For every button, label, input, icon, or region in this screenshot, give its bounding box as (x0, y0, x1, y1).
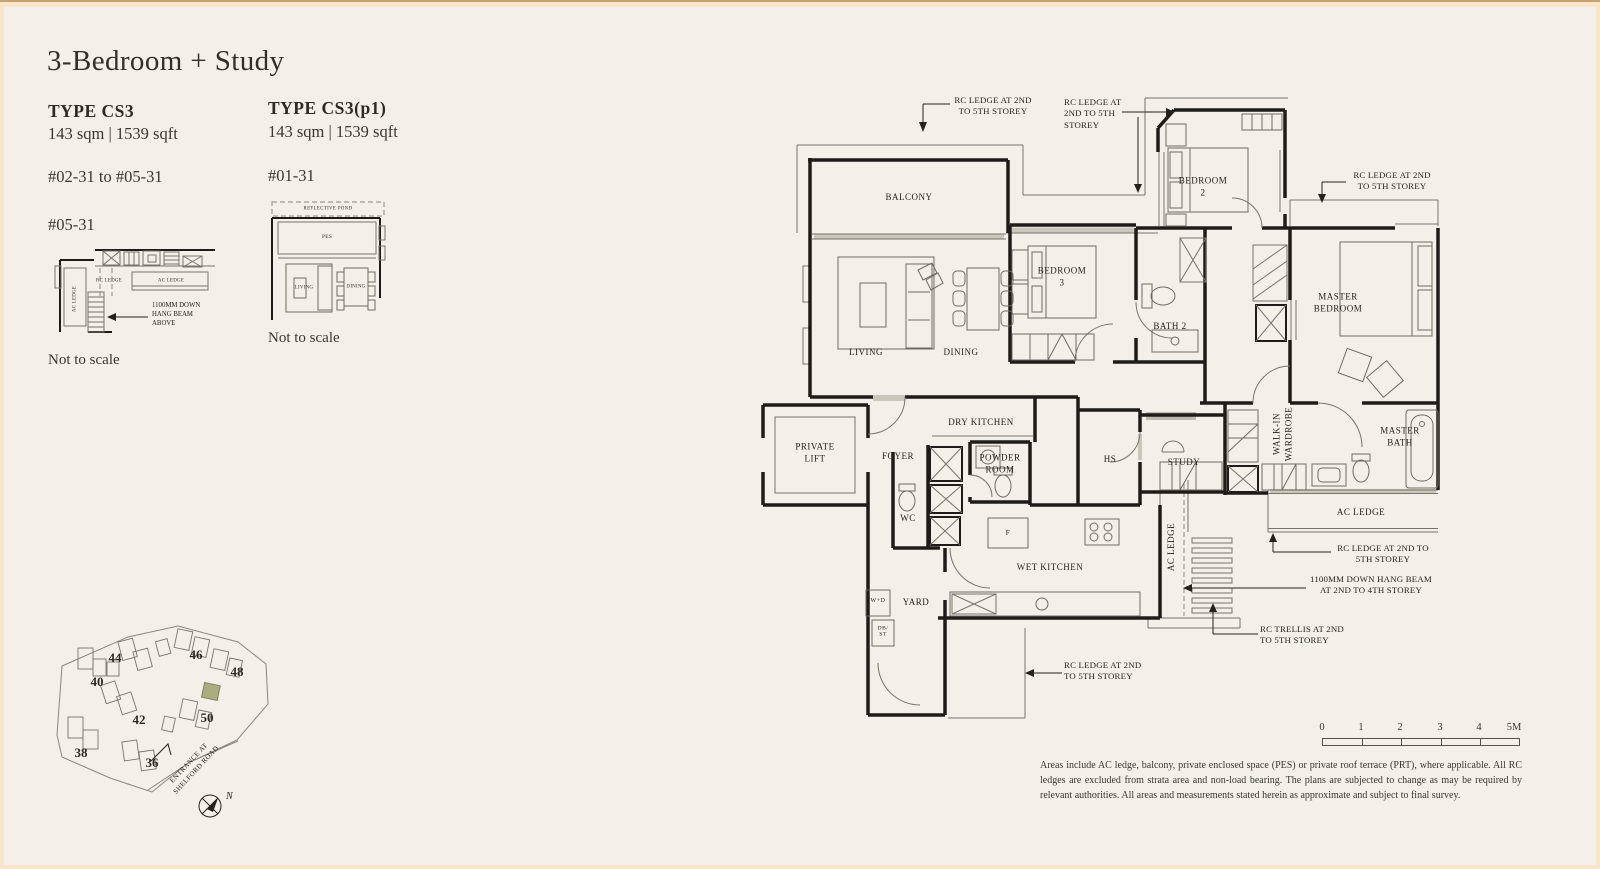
mini-cs3-ac-ledge-label: AC LEDGE (158, 279, 184, 284)
site-block-46: 46 (190, 647, 203, 663)
type-cs3p1-name: TYPE CS3(p1) (268, 98, 386, 119)
mini-cs3p1-living-label: LIVING (295, 286, 313, 291)
room-label-dining: DINING (944, 347, 979, 359)
floor-plan-brochure-page: 3-Bedroom + Study TYPE CS3 143 sqm | 153… (0, 0, 1600, 869)
room-label-bedroom3: BEDROOM 3 (1038, 265, 1087, 288)
page-border-topline (0, 0, 1600, 2)
room-label-hs: HS (1104, 454, 1117, 466)
site-block-40: 40 (91, 674, 104, 690)
type-cs3-units: #02-31 to #05-31 (48, 167, 163, 187)
room-label-wc: WC (900, 513, 916, 525)
room-label-master-bath: MASTER BATH (1380, 425, 1420, 448)
annotation-rc-ledge-right: RC LEDGE AT 2ND TO 5TH STOREY (1333, 543, 1433, 566)
scale-bar-rule (1322, 738, 1520, 746)
room-label-walk-in-wardrobe: WALK-IN WARDROBE (1271, 407, 1294, 462)
mini-cs3-leader (107, 313, 148, 321)
room-label-private-lift: PRIVATE LIFT (795, 441, 834, 464)
type-cs3-name: TYPE CS3 (48, 101, 134, 122)
room-label-ac-ledge-mid: AC LEDGE (1166, 523, 1178, 571)
annotation-rc-ledge-top-left: RC LEDGE AT 2ND TO 5TH STOREY (948, 95, 1038, 118)
annotation-rc-trellis: RC TRELLIS AT 2ND TO 5TH STOREY (1260, 624, 1352, 647)
type-cs3p1-area: 143 sqm | 1539 sqft (268, 122, 398, 142)
site-block-44: 44 (109, 650, 122, 666)
annotation-rc-ledge-bottom: RC LEDGE AT 2ND TO 5TH STOREY (1064, 660, 1152, 683)
site-block-48: 48 (231, 664, 244, 680)
disclaimer-text: Areas include AC ledge, balcony, private… (1040, 758, 1522, 804)
page-border-bottom (0, 865, 1600, 869)
room-label-wet-kitchen: WET KITCHEN (1017, 562, 1084, 574)
room-label-db-st: DB/ ST (878, 626, 889, 639)
page-border-left (0, 0, 4, 869)
room-label-study: STUDY (1168, 457, 1201, 469)
type-cs3p1-units: #01-31 (268, 166, 315, 186)
mini-cs3-beam-note: 1100MM DOWN HANG BEAM ABOVE (152, 301, 200, 329)
annotation-rc-ledge-top-right: RC LEDGE AT 2ND TO 5TH STOREY (1348, 170, 1436, 193)
mini-plan-cs3p1 (264, 196, 392, 332)
annotation-rc-ledge-top-mid: RC LEDGE AT 2ND TO 5TH STOREY (1064, 97, 1134, 131)
site-block-50: 50 (201, 710, 214, 726)
mini-cs3p1-pes-label: PES (322, 234, 332, 240)
site-block-36: 36 (146, 755, 159, 771)
mini-cs3p1-reflective-pond-label: REFLECTIVE POND (303, 207, 352, 212)
site-map (45, 615, 280, 825)
plan-annotation-leaders (919, 104, 1346, 677)
room-label-yard: YARD (903, 597, 930, 609)
scale-tick-5m: 5M (1507, 722, 1522, 733)
scale-tick-3: 3 (1437, 722, 1442, 733)
type-cs3-detail-unit: #05-31 (48, 215, 95, 235)
not-to-scale-note-2: Not to scale (268, 330, 340, 347)
site-block-38: 38 (75, 745, 88, 761)
annotation-hang-beam: 1100MM DOWN HANG BEAM AT 2ND TO 4TH STOR… (1308, 574, 1434, 597)
site-block-42: 42 (133, 712, 146, 728)
room-label-powder-room: POWDER ROOM (980, 452, 1021, 475)
room-label-balcony: BALCONY (885, 192, 932, 204)
mini-cs3-rc-ledge-label: RC LEDGE (96, 279, 122, 284)
scale-tick-4: 4 (1476, 722, 1481, 733)
page-border-right (1596, 0, 1600, 869)
scale-tick-0: 0 (1319, 722, 1324, 733)
compass-icon (199, 795, 221, 817)
mini-cs3p1-dining-label: DINING (347, 285, 366, 290)
compass-north-label: N (226, 791, 233, 802)
room-label-dry-kitchen: DRY KITCHEN (948, 417, 1013, 429)
room-label-bath2: BATH 2 (1153, 321, 1186, 333)
site-boundary (57, 626, 268, 792)
room-label-bedroom2: BEDROOM 2 (1179, 175, 1228, 198)
room-label-fridge: F (1006, 528, 1011, 538)
not-to-scale-note-1: Not to scale (48, 352, 120, 369)
plan-shafts (930, 245, 1287, 545)
room-label-foyer: FOYER (882, 451, 914, 463)
page-title: 3-Bedroom + Study (47, 45, 284, 78)
room-label-living: LIVING (849, 347, 883, 359)
mini-cs3-ac-ledge-side-label: AC LEDGE (73, 286, 78, 312)
room-label-ac-ledge-right: AC LEDGE (1337, 507, 1385, 519)
scale-tick-2: 2 (1397, 722, 1402, 733)
type-cs3-area: 143 sqm | 1539 sqft (48, 124, 178, 144)
scale-tick-1: 1 (1358, 722, 1363, 733)
room-label-master-bedroom: MASTER BEDROOM (1314, 291, 1363, 314)
room-label-washer-dryer: W+D (871, 598, 886, 606)
